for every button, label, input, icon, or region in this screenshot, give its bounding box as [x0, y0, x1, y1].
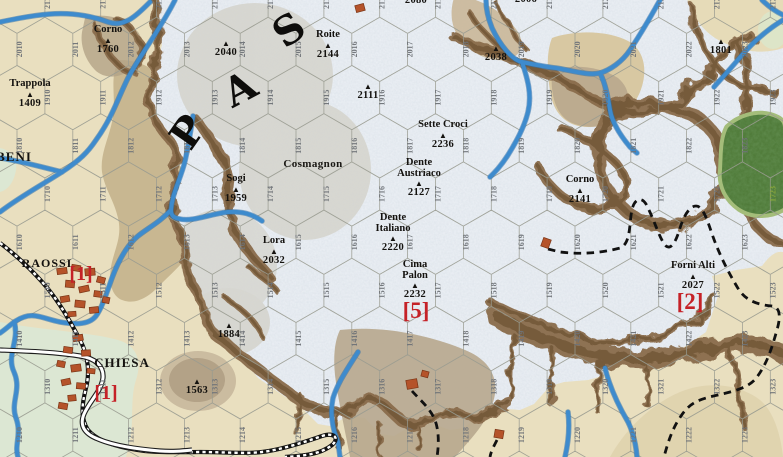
hex-label: 1320 [601, 379, 610, 395]
hex-label: 1210 [15, 427, 24, 443]
hex-label: 1523 [768, 282, 777, 298]
building-icon [68, 395, 77, 402]
hex-label: 1620 [573, 234, 582, 250]
hex-label: 1510 [43, 282, 52, 298]
hex-label: 1318 [489, 379, 498, 395]
hex-label: 1615 [294, 234, 303, 250]
hex-label: 1710 [43, 186, 52, 202]
hex-label: 2010 [15, 41, 24, 57]
hex-label: 1423 [740, 331, 749, 347]
hex-label: 1616 [350, 234, 359, 250]
hex-label: 1422 [685, 331, 694, 347]
hex-label: 2012 [127, 41, 136, 57]
hex-label: 1719 [545, 186, 554, 202]
hex-label: 1411 [71, 331, 80, 347]
hex-label: 2016 [350, 41, 359, 57]
hex-label: 2119 [545, 0, 554, 9]
hex-label: 1511 [99, 283, 108, 299]
hex-label: 2013 [182, 41, 191, 57]
hex-label: 1612 [127, 234, 136, 250]
hex-label: 1915 [322, 90, 331, 106]
building-icon [87, 368, 95, 374]
hex-label: 2113 [210, 0, 219, 9]
hex-label: 1419 [517, 331, 526, 347]
hex-label: 1614 [238, 234, 247, 250]
hex-label: 1515 [322, 282, 331, 298]
hex-label: 1817 [406, 138, 415, 154]
hex-label: 1311 [99, 379, 108, 395]
hex-label: 1823 [740, 138, 749, 154]
hex-label: 1916 [378, 90, 387, 106]
hex-label: 1811 [71, 138, 80, 154]
hex-label: 1813 [182, 138, 191, 154]
hex-label: 1619 [517, 234, 526, 250]
hex-label: 1520 [601, 282, 610, 298]
building-icon [65, 280, 75, 288]
hex-label: 1315 [322, 379, 331, 395]
hex-label: 1220 [573, 427, 582, 443]
hex-label: 1316 [378, 379, 387, 395]
building-icon [75, 300, 86, 308]
hex-label: 1413 [182, 331, 191, 347]
hex-label: 1218 [461, 427, 470, 443]
hex-label: 1221 [629, 427, 638, 443]
hex-label: 1920 [601, 90, 610, 106]
hex-label: 1918 [489, 90, 498, 106]
hex-label: 1512 [155, 282, 164, 298]
hex-label: 1822 [685, 138, 694, 154]
building-icon [63, 346, 73, 353]
hex-label: 1613 [182, 234, 191, 250]
hex-label: 2120 [601, 0, 610, 9]
hex-label: 1911 [99, 90, 108, 106]
building-icon [89, 307, 99, 314]
hex-label: 1917 [434, 90, 443, 106]
hex-label: 2017 [406, 41, 415, 57]
building-icon [85, 268, 96, 276]
hex-label: 1818 [461, 138, 470, 154]
hex-label: 1519 [545, 282, 554, 298]
hex-label: 1923 [768, 90, 777, 106]
hex-label: 1314 [266, 379, 275, 395]
hex-label: 1623 [740, 234, 749, 250]
hex-label: 2020 [573, 41, 582, 57]
hex-label: 1319 [545, 379, 554, 395]
hex-label: 1212 [127, 427, 136, 443]
hex-label: 1521 [657, 282, 666, 298]
hex-label: 2118 [489, 0, 498, 9]
hex-label: 1513 [210, 282, 219, 298]
hex-label: 1611 [71, 234, 80, 250]
hex-label: 1714 [266, 186, 275, 202]
hex-label: 1322 [713, 379, 722, 395]
hex-label: 1317 [434, 379, 443, 395]
hex-label: 1610 [15, 234, 24, 250]
hex-label: 1514 [266, 282, 275, 298]
hex-label: 1417 [406, 331, 415, 347]
hex-label: 1919 [545, 90, 554, 106]
hex-label: 1420 [573, 331, 582, 347]
hex-label: 1421 [629, 331, 638, 347]
hex-label: 1418 [461, 331, 470, 347]
hex-label: 1717 [434, 186, 443, 202]
wargame-hex-map: 1210121112121213121412151216121712181219… [0, 0, 783, 457]
building-icon [57, 267, 68, 274]
hex-label: 2018 [461, 41, 470, 57]
hex-label: 1723 [768, 186, 777, 202]
hex-label: 1618 [461, 234, 470, 250]
hex-label: 2022 [685, 41, 694, 57]
building-icon [421, 370, 429, 378]
hex-label: 1213 [182, 427, 191, 443]
map-canvas: 1210121112121213121412151216121712181219… [0, 0, 783, 457]
hex-label: 2122 [713, 0, 722, 9]
hex-label: 1217 [406, 427, 415, 443]
hex-label: 1912 [155, 90, 164, 106]
hex-label: 2019 [517, 41, 526, 57]
hex-label: 2123 [768, 0, 777, 9]
hex-label: 1410 [15, 331, 24, 347]
building-icon [68, 311, 76, 317]
hex-label: 1414 [238, 331, 247, 347]
hex-label: 1910 [43, 90, 52, 106]
hex-label: 2115 [322, 0, 331, 9]
hex-label: 1416 [350, 331, 359, 347]
hex-label: 2111 [99, 0, 108, 9]
hex-label: 1816 [350, 138, 359, 154]
hex-label: 2014 [238, 41, 247, 57]
building-icon [58, 402, 68, 409]
hex-label: 1617 [406, 234, 415, 250]
hex-label: 1721 [657, 186, 666, 202]
hex-label: 1211 [71, 427, 80, 443]
hex-label: 1716 [378, 186, 387, 202]
hex-label: 1219 [517, 427, 526, 443]
hex-label: 1518 [489, 282, 498, 298]
hex-label: 1522 [713, 282, 722, 298]
hex-label: 1412 [127, 331, 136, 347]
building-icon [56, 360, 65, 368]
hex-label: 1914 [266, 90, 275, 106]
hex-label: 1819 [517, 138, 526, 154]
hex-label: 1310 [43, 379, 52, 395]
building-icon [71, 264, 81, 271]
building-icon [81, 350, 90, 357]
hex-label: 1216 [350, 427, 359, 443]
hex-label: 1821 [629, 138, 638, 154]
hex-label: 2116 [378, 0, 387, 9]
building-icon [406, 379, 418, 390]
hex-label: 2112 [155, 0, 164, 9]
hex-label: 1415 [294, 331, 303, 347]
hex-label: 1718 [489, 186, 498, 202]
hex-label: 1323 [768, 379, 777, 395]
hex-label: 1913 [210, 90, 219, 106]
hex-label: 1321 [657, 379, 666, 395]
hex-label: 1223 [740, 427, 749, 443]
hex-label: 1715 [322, 186, 331, 202]
hex-label: 1921 [657, 90, 666, 106]
hex-label: 1720 [601, 186, 610, 202]
hex-label: 2023 [740, 41, 749, 57]
hex-label: 2110 [43, 0, 52, 9]
hex-label: 1922 [713, 90, 722, 106]
hex-label: 2117 [434, 0, 443, 9]
hex-label: 2121 [657, 0, 666, 9]
building-icon [76, 383, 85, 390]
hex-label: 1312 [155, 379, 164, 395]
hex-label: 1517 [434, 282, 443, 298]
hex-label: 2011 [71, 42, 80, 58]
hex-label: 1814 [238, 138, 247, 154]
hex-label: 2015 [294, 41, 303, 57]
hex-label: 1622 [685, 234, 694, 250]
hex-label: 1812 [127, 138, 136, 154]
hex-label: 1621 [629, 234, 638, 250]
hex-label: 2021 [629, 41, 638, 57]
hex-label: 1313 [210, 379, 219, 395]
hex-label: 1722 [713, 186, 722, 202]
hex-label: 1713 [210, 186, 219, 202]
building-icon [71, 364, 82, 372]
hex-label: 1815 [294, 138, 303, 154]
hex-label: 1712 [155, 186, 164, 202]
building-icon [494, 429, 504, 438]
building-icon [60, 295, 70, 302]
hex-label: 2114 [266, 0, 275, 9]
hex-label: 1810 [15, 138, 24, 154]
hex-label: 1222 [685, 427, 694, 443]
hex-label: 1711 [99, 186, 108, 202]
hex-label: 1516 [378, 282, 387, 298]
hex-label: 1214 [238, 427, 247, 443]
hex-label: 1820 [573, 138, 582, 154]
hex-label: 1215 [294, 427, 303, 443]
